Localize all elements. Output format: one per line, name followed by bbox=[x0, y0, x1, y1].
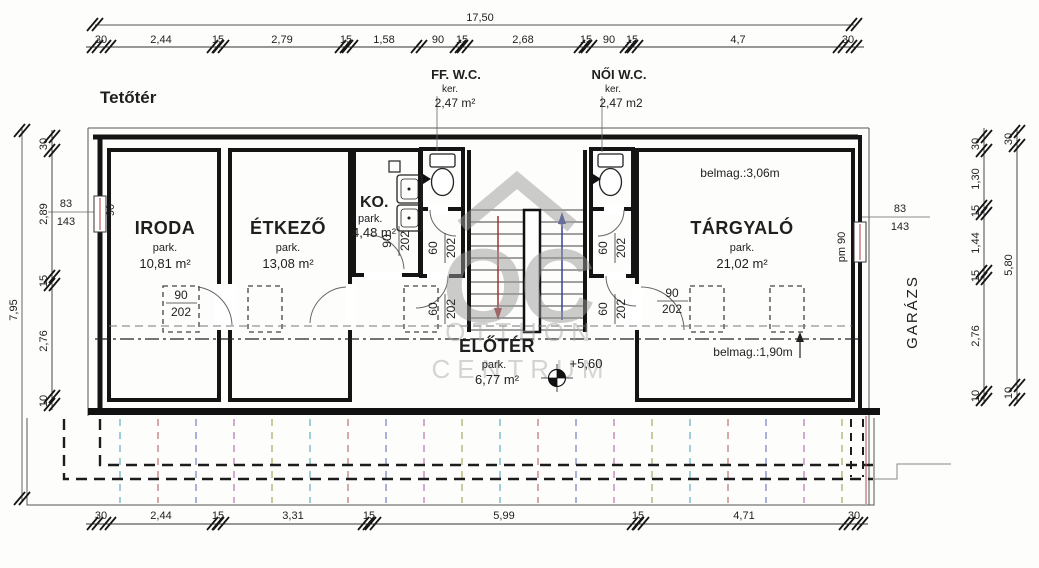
window-right bbox=[854, 222, 866, 262]
door-label-noi-upper: 60 202 bbox=[596, 233, 628, 263]
dim-top-2: 15 bbox=[212, 34, 224, 46]
room-park: park. bbox=[358, 213, 382, 225]
room-park: park. bbox=[153, 242, 177, 254]
room-area: 10,81 m² bbox=[139, 256, 191, 271]
dim-left-2: 15 bbox=[38, 275, 50, 287]
window-left-size: 90 bbox=[105, 204, 117, 216]
room-targyalo-walls bbox=[637, 150, 853, 400]
room-name: NŐI W.C. bbox=[592, 67, 647, 82]
dimension-chain-top: 30 2,44 15 2,79 15 1,58 90 15 2,68 15 90… bbox=[86, 34, 864, 53]
dim-top-8: 2,68 bbox=[512, 34, 533, 46]
door-label-targyalo: 90 202 bbox=[657, 286, 688, 316]
door-width: 60 bbox=[426, 302, 440, 316]
room-area: 21,02 m² bbox=[716, 256, 768, 271]
dim-top-3: 2,79 bbox=[271, 34, 292, 46]
floor-plan-drawing: OC OTTHON CENTRUM 17,50 30 2,44 15 2,79 … bbox=[0, 0, 1039, 568]
door-width: 60 bbox=[596, 302, 610, 316]
dim-left-4: 10 bbox=[38, 395, 50, 407]
bottom-main-wall bbox=[88, 408, 880, 415]
window-right-width: 83 bbox=[894, 203, 906, 215]
dim-top-5: 1,58 bbox=[373, 34, 394, 46]
room-etkezo: ÉTKEZŐ park. 13,08 m² bbox=[250, 217, 326, 271]
window-left-width: 83 bbox=[60, 198, 72, 210]
room-targyalo: TÁRGYALÓ park. 21,02 m² bbox=[690, 217, 793, 271]
room-area: 2,47 m2 bbox=[599, 96, 643, 110]
room-park: park. bbox=[730, 242, 754, 254]
room-name: IRODA bbox=[135, 218, 196, 238]
dim-top-9: 15 bbox=[580, 34, 592, 46]
room-ker: ker. bbox=[605, 84, 621, 95]
dim-top-1: 2,44 bbox=[150, 34, 171, 46]
room-iroda: IRODA park. 10,81 m² bbox=[135, 218, 196, 271]
dim-top-12: 4,7 bbox=[730, 34, 745, 46]
room-ff-wc-label: FF. W.C. ker. 2,47 m² bbox=[431, 67, 481, 110]
window-right-label: 83 143 pm 90 bbox=[836, 203, 909, 262]
dim-right-inner-3: 1,44 bbox=[970, 232, 982, 253]
room-area: 4,48 m² bbox=[352, 225, 397, 240]
dim-bottom-7: 4,71 bbox=[733, 510, 754, 522]
dimension-chain-right-inner: 30 1,30 15 1,44 15 2,76 10 bbox=[970, 128, 992, 406]
room-area: 2,47 m² bbox=[435, 96, 476, 110]
room-name: TÁRGYALÓ bbox=[690, 217, 793, 238]
dim-top-13: 30 bbox=[842, 34, 854, 46]
dim-top-0: 30 bbox=[95, 34, 107, 46]
floor-plan-page: OC OTTHON CENTRUM 17,50 30 2,44 15 2,79 … bbox=[0, 0, 1039, 568]
dimension-chain-top-total: 17,50 bbox=[87, 12, 862, 31]
dim-right-outer-0: 30 bbox=[1003, 133, 1015, 145]
dim-right-inner-2: 15 bbox=[970, 205, 982, 217]
dim-left-0: 30 bbox=[38, 138, 50, 150]
dimension-chain-bottom: 30 2,44 15 3,31 15 5,99 15 4,71 30 bbox=[86, 510, 868, 530]
door-height: 202 bbox=[614, 238, 628, 258]
window-left-height: 143 bbox=[57, 216, 75, 228]
dim-bottom-1: 2,44 bbox=[150, 510, 171, 522]
door-height: 202 bbox=[398, 231, 412, 251]
ceiling-height-low: belmag.:1,90m bbox=[713, 332, 804, 359]
dim-top-10: 90 bbox=[603, 34, 615, 46]
garage-label: GARÁZS bbox=[904, 275, 921, 349]
dim-top-11: 15 bbox=[626, 34, 638, 46]
door-width: 60 bbox=[596, 241, 610, 255]
dim-right-inner-0: 30 bbox=[970, 138, 982, 150]
dim-right-inner-4: 15 bbox=[970, 270, 982, 282]
dimension-ticks bbox=[87, 40, 862, 53]
room-name: ELŐTÉR bbox=[459, 335, 535, 356]
room-ko: KO. park. 4,48 m² bbox=[352, 194, 397, 240]
door-height: 202 bbox=[171, 305, 191, 319]
door-height: 202 bbox=[614, 299, 628, 319]
dim-right-inner-1: 1,30 bbox=[970, 168, 982, 189]
ceiling-height-low-text: belmag.:1,90m bbox=[713, 345, 792, 359]
toilet-icon-ff bbox=[423, 154, 455, 196]
room-noi-wc-label: NŐI W.C. ker. 2,47 m2 bbox=[592, 67, 647, 110]
room-name: ÉTKEZŐ bbox=[250, 217, 326, 238]
sink-icons bbox=[389, 161, 422, 231]
room-iroda-walls bbox=[109, 150, 219, 400]
room-ker: ker. bbox=[442, 84, 458, 95]
room-etkezo-walls bbox=[230, 150, 350, 400]
window-right-size: pm 90 bbox=[836, 232, 848, 263]
garage-outline-step bbox=[874, 464, 951, 479]
dim-right-inner-6: 10 bbox=[970, 390, 982, 402]
dim-bottom-2: 15 bbox=[212, 510, 224, 522]
level-value: +5,60 bbox=[570, 356, 603, 371]
door-height: 202 bbox=[444, 299, 458, 319]
floor-title: Tetőtér bbox=[100, 88, 157, 107]
door-width: 90 bbox=[665, 286, 679, 300]
dimension-chain-right-outer: 30 5,80 10 bbox=[1003, 125, 1025, 406]
dim-left-3: 2,76 bbox=[38, 330, 50, 351]
room-park: park. bbox=[482, 359, 506, 371]
dim-right-inner-5: 2,76 bbox=[970, 325, 982, 346]
room-name: KO. bbox=[360, 194, 388, 211]
dim-bottom-0: 30 bbox=[95, 510, 107, 522]
door-width: 90 bbox=[174, 288, 188, 302]
door-label-noi-lower: 60 202 bbox=[596, 294, 628, 324]
terrace-roof bbox=[27, 408, 951, 505]
dim-right-outer-1: 5,80 bbox=[1003, 254, 1015, 275]
dim-right-outer-2: 10 bbox=[1003, 387, 1015, 399]
dim-bottom-4: 15 bbox=[363, 510, 375, 522]
door-height: 202 bbox=[662, 302, 682, 316]
dim-top-4: 15 bbox=[340, 34, 352, 46]
dim-bottom-8: 30 bbox=[848, 510, 860, 522]
door-width: 60 bbox=[426, 241, 440, 255]
dim-top-6: 90 bbox=[432, 34, 444, 46]
room-area: 13,08 m² bbox=[262, 256, 314, 271]
dim-left-1: 2,89 bbox=[38, 203, 50, 224]
room-area: 6,77 m² bbox=[475, 372, 520, 387]
door-swing-arc bbox=[310, 287, 346, 323]
dim-top-7: 15 bbox=[456, 34, 468, 46]
dim-bottom-6: 15 bbox=[632, 510, 644, 522]
dim-bottom-5: 5,99 bbox=[493, 510, 514, 522]
dim-total-height: 7,95 bbox=[8, 299, 20, 320]
dim-total-width: 17,50 bbox=[466, 12, 494, 24]
room-name: FF. W.C. bbox=[431, 67, 481, 82]
watermark-roof-icon bbox=[462, 180, 572, 226]
door-label-iroda: 90 202 bbox=[166, 288, 197, 319]
room-park: park. bbox=[276, 242, 300, 254]
up-arrow-icon bbox=[796, 332, 804, 342]
rafter-lines bbox=[120, 419, 842, 503]
dim-bottom-3: 3,31 bbox=[282, 510, 303, 522]
door-height: 202 bbox=[444, 238, 458, 258]
toilet-icon-noi bbox=[593, 154, 623, 196]
window-right-height: 143 bbox=[891, 221, 909, 233]
ceiling-height-top: belmag.:3,06m bbox=[700, 166, 779, 180]
dimension-chain-left-inner: 30 2,89 15 2,76 10 bbox=[38, 130, 60, 411]
shower-marker-icon bbox=[423, 174, 431, 184]
